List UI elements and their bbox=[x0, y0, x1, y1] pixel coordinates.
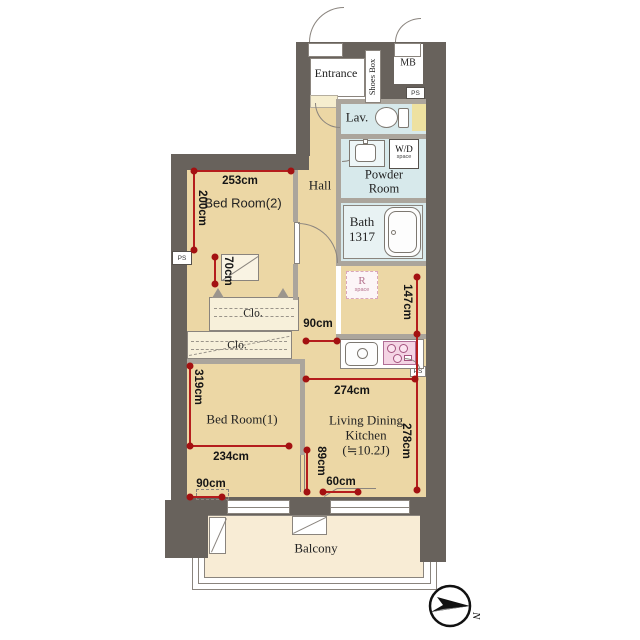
ldk-label: Living Dining Kitchen (≒10.2J) bbox=[329, 414, 403, 459]
measure-line bbox=[306, 449, 308, 492]
measure-bedroom2-width: 253cm bbox=[222, 175, 258, 187]
measure-line bbox=[305, 340, 337, 342]
measure-bedroom1-depth: 319cm bbox=[192, 369, 204, 405]
measure-ldk-west: 89cm bbox=[315, 446, 327, 475]
measure-line bbox=[416, 276, 418, 333]
hall-label: Hall bbox=[309, 179, 331, 194]
measure-line bbox=[189, 496, 222, 498]
measure-dot bbox=[303, 376, 310, 383]
closet-upper-label: Clo. bbox=[243, 307, 263, 320]
bedroom1-window bbox=[227, 500, 290, 514]
pipe-space-entrance: PS bbox=[406, 87, 425, 99]
measure-ldk-depth: 278cm bbox=[400, 423, 412, 459]
wall-wet-top bbox=[336, 99, 426, 104]
measure-dot bbox=[320, 489, 327, 496]
measure-line bbox=[189, 365, 191, 446]
floor-plan: MB Shoes Box PS PS PS W/D space R space bbox=[0, 0, 640, 640]
measure-dot bbox=[212, 254, 219, 261]
measure-dot bbox=[288, 168, 295, 175]
measure-dot bbox=[191, 247, 198, 254]
measure-line bbox=[193, 170, 291, 172]
measure-line bbox=[305, 378, 415, 380]
wall-bath-south bbox=[336, 261, 426, 266]
closet-lower-label: Clo. bbox=[227, 339, 247, 352]
window-sash-line bbox=[228, 507, 289, 508]
measure-bedroom1-width: 234cm bbox=[213, 451, 249, 463]
measure-dot bbox=[303, 338, 310, 345]
washbasin-tap bbox=[363, 139, 368, 144]
ldk-line2: Kitchen bbox=[329, 429, 403, 444]
entrance-door-swing bbox=[309, 7, 344, 42]
wall-powder-bath bbox=[336, 198, 426, 203]
measure-ldk-bottom: 60cm bbox=[326, 476, 355, 488]
measure-dot bbox=[414, 331, 421, 338]
wall-balcony-right bbox=[420, 500, 446, 562]
measure-ldk-width: 274cm bbox=[334, 385, 370, 397]
bedroom2-label: Bed Room(2) bbox=[204, 196, 281, 211]
wd-label: W/D bbox=[390, 144, 418, 154]
balcony-label: Balcony bbox=[294, 542, 337, 557]
lav-label: Lav. bbox=[346, 111, 369, 126]
sliding-door-line bbox=[304, 455, 305, 492]
measure-dot bbox=[304, 447, 311, 454]
bathtub-drain bbox=[391, 230, 396, 235]
measure-dot bbox=[191, 168, 198, 175]
washbasin-bowl bbox=[355, 144, 376, 162]
bedroom1-label: Bed Room(1) bbox=[206, 413, 277, 428]
mb-door-swing bbox=[395, 18, 421, 42]
measure-line bbox=[189, 445, 289, 447]
entrance-door-leaf bbox=[308, 43, 343, 57]
measure-dot bbox=[412, 376, 419, 383]
measure-bedroom1-window: 90cm bbox=[196, 478, 225, 490]
stove-burner bbox=[399, 344, 408, 353]
counter-edge-line bbox=[340, 368, 404, 369]
pipe-space-left-wall: PS bbox=[172, 251, 192, 265]
measure-hall-opening: 90cm bbox=[303, 318, 332, 330]
wall-bedroom2-east bbox=[293, 170, 298, 222]
wall-bedroom1-north bbox=[187, 359, 305, 364]
measure-dot bbox=[219, 494, 226, 501]
toilet-tank-icon bbox=[398, 108, 409, 128]
wall-left bbox=[171, 170, 187, 515]
stove-burner bbox=[387, 344, 396, 353]
compass: N bbox=[424, 580, 480, 636]
measure-bath-side: 147cm bbox=[401, 284, 413, 320]
measure-line bbox=[193, 170, 195, 250]
sliding-door-line bbox=[300, 455, 301, 492]
measure-line bbox=[416, 333, 418, 490]
stove-burner bbox=[393, 354, 402, 363]
wall-bedroom2-east bbox=[293, 264, 298, 300]
measure-dot bbox=[355, 489, 362, 496]
measure-bedroom2-depth: 200cm bbox=[196, 190, 208, 226]
ldk-line3: (≒10.2J) bbox=[329, 443, 403, 458]
measure-bedroom2-closet: 70cm bbox=[222, 256, 234, 285]
mb-door-leaf bbox=[394, 43, 421, 57]
refrigerator-space-label: space bbox=[347, 287, 377, 293]
window-sash-line bbox=[331, 507, 409, 508]
measure-dot bbox=[304, 489, 311, 496]
refrigerator-label: R bbox=[347, 275, 377, 287]
wd-space-box: W/D space bbox=[389, 139, 419, 169]
kitchen-sink-drain bbox=[357, 348, 368, 359]
measure-dot bbox=[212, 281, 219, 288]
measure-dot bbox=[286, 443, 293, 450]
refrigerator-space: R space bbox=[346, 271, 378, 299]
bath-name: Bath bbox=[349, 215, 375, 230]
wd-space-label: space bbox=[390, 154, 418, 160]
meter-box-label: MB bbox=[400, 57, 416, 69]
measure-dot bbox=[187, 494, 194, 501]
closet-door-pivot bbox=[277, 288, 289, 298]
toilet-bowl-icon bbox=[375, 107, 398, 128]
wall-hall-west bbox=[296, 58, 310, 156]
ldk-window bbox=[330, 500, 410, 514]
shoes-box-label: Shoes Box bbox=[368, 59, 378, 96]
compass-north-label: N bbox=[470, 611, 480, 620]
entrance-label: Entrance bbox=[315, 67, 358, 81]
ldk-line1: Living Dining bbox=[329, 414, 403, 429]
powder-room-label: Powder Room bbox=[356, 168, 412, 197]
measure-line bbox=[322, 491, 358, 493]
lav-side-strip bbox=[412, 104, 426, 131]
wall-balcony-left bbox=[165, 500, 208, 558]
bath-label: Bath 1317 bbox=[349, 215, 375, 245]
closet-door-pivot bbox=[212, 288, 224, 298]
measure-dot bbox=[414, 487, 421, 494]
measure-dot bbox=[414, 274, 421, 281]
bath-size: 1317 bbox=[349, 230, 375, 245]
measure-dot bbox=[334, 338, 341, 345]
measure-dot bbox=[187, 443, 194, 450]
wall-right bbox=[426, 42, 446, 520]
